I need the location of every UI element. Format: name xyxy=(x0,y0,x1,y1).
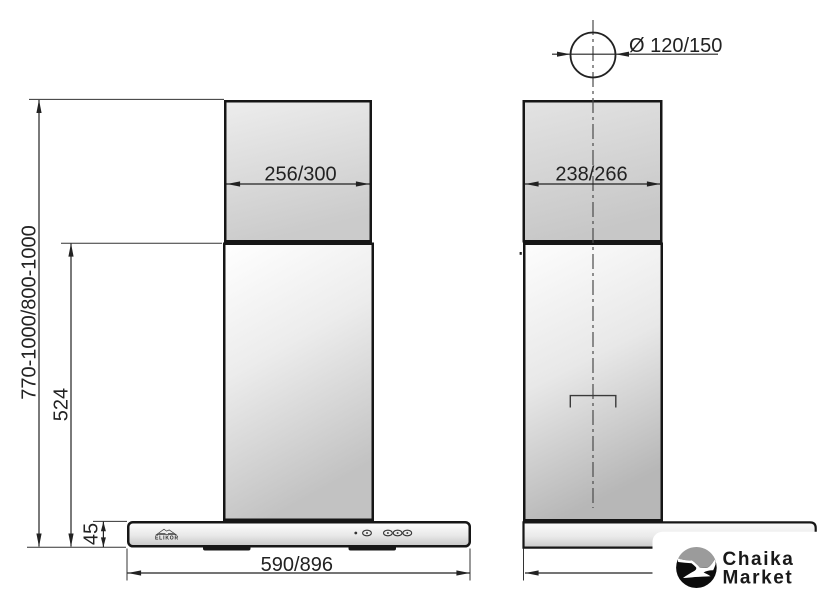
svg-text:Market: Market xyxy=(723,568,794,589)
svg-text:256/300: 256/300 xyxy=(264,164,336,186)
svg-text:238/266: 238/266 xyxy=(555,164,627,186)
svg-text:770-1000/800-1000: 770-1000/800-1000 xyxy=(19,225,41,400)
svg-text:ELIKOR: ELIKOR xyxy=(155,535,179,541)
svg-text:524: 524 xyxy=(51,388,73,421)
svg-text:Ø 120/150: Ø 120/150 xyxy=(629,35,722,57)
svg-text:45: 45 xyxy=(81,523,103,545)
svg-text:590/896: 590/896 xyxy=(261,554,333,576)
